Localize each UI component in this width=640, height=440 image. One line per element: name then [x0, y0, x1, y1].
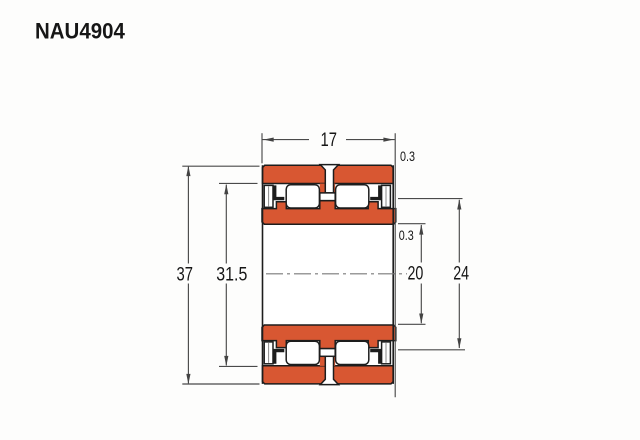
svg-text:0.3: 0.3 — [400, 149, 415, 164]
svg-text:37: 37 — [177, 264, 193, 285]
svg-text:20: 20 — [408, 263, 424, 284]
svg-text:NAU4904: NAU4904 — [35, 19, 125, 44]
svg-text:17: 17 — [321, 129, 337, 150]
svg-text:31.5: 31.5 — [216, 263, 247, 285]
svg-text:24: 24 — [453, 263, 469, 284]
svg-text:0.3: 0.3 — [399, 228, 414, 243]
